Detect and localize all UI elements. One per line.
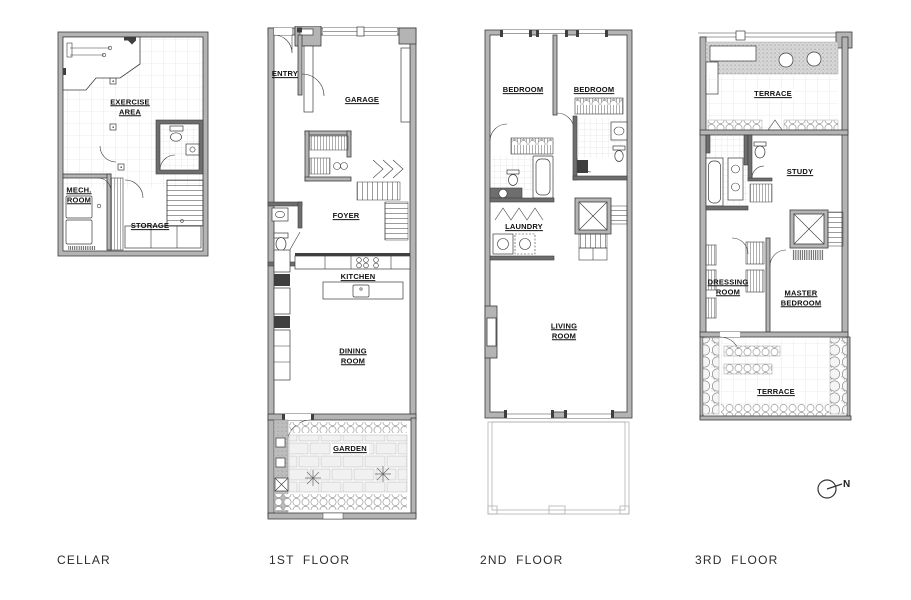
room-label-garage: GARAGE: [345, 95, 379, 105]
room-label-living-room: LIVING ROOM: [551, 321, 577, 341]
toilet-room: [748, 135, 772, 202]
first-floor-plan: ENTRY GARAGE FOYER KITCHEN DINING ROOM G…: [265, 26, 420, 524]
caption-3rd-floor: 3RD FLOOR: [695, 553, 778, 567]
room-label-storage: STORAGE: [131, 221, 169, 231]
room-label-bedroom-left: BEDROOM: [503, 85, 544, 95]
second-floor-drawing: [483, 28, 635, 520]
cellar-stairs: [167, 180, 203, 226]
north-label: N: [843, 479, 850, 490]
room-label-exercise-area: EXERCISE AREA: [110, 97, 150, 117]
entry-vestibule: [274, 28, 302, 95]
room-label-foyer: FOYER: [333, 211, 360, 221]
roof-outline: [488, 422, 629, 514]
cellar-closet-hatch: [111, 178, 123, 250]
room-label-master-bedroom: MASTER BEDROOM: [781, 288, 822, 308]
mid-closet: [305, 131, 351, 181]
master-bathroom: [706, 135, 748, 210]
third-floor-drawing: [698, 20, 855, 424]
room-label-bedroom-right: BEDROOM: [574, 85, 615, 95]
second-floor-plan: BEDROOM BEDROOM LAUNDRY LIVING ROOM: [483, 28, 635, 520]
terrace-top: [706, 42, 838, 130]
room-label-terrace-top: TERRACE: [752, 89, 794, 99]
room-label-laundry: LAUNDRY: [505, 222, 543, 232]
study-stairs: [790, 210, 843, 260]
lower-terrace: [700, 332, 851, 420]
room-label-study: STUDY: [787, 167, 813, 177]
room-label-kitchen: KITCHEN: [341, 272, 376, 282]
room-label-terrace-bottom: TERRACE: [755, 387, 797, 397]
north-arrow-icon: [816, 478, 846, 500]
third-floor-plan: TERRACE STUDY DRESSING ROOM MASTER BEDRO…: [698, 20, 855, 424]
room-label-dressing-room: DRESSING ROOM: [708, 277, 749, 297]
room-label-dining-room: DINING ROOM: [339, 346, 366, 366]
fireplace-bump: [485, 306, 497, 358]
floor-plan-sheet: EXERCISE AREA MECH. ROOM STORAGE: [0, 0, 911, 600]
stair-chevrons: [373, 160, 403, 178]
room-label-garden: GARDEN: [331, 444, 369, 454]
room-label-mech-room: MECH. ROOM: [66, 185, 91, 205]
cellar-plan: EXERCISE AREA MECH. ROOM STORAGE: [56, 28, 211, 260]
left-counters: [274, 250, 290, 380]
caption-cellar: CELLAR: [57, 553, 111, 567]
caption-1st-floor: 1ST FLOOR: [269, 553, 350, 567]
cellar-bathroom: [156, 120, 203, 174]
caption-2nd-floor: 2ND FLOOR: [480, 553, 563, 567]
main-stairs: [357, 182, 408, 240]
garden-area: [274, 414, 407, 519]
room-label-entry: ENTRY: [272, 69, 298, 79]
